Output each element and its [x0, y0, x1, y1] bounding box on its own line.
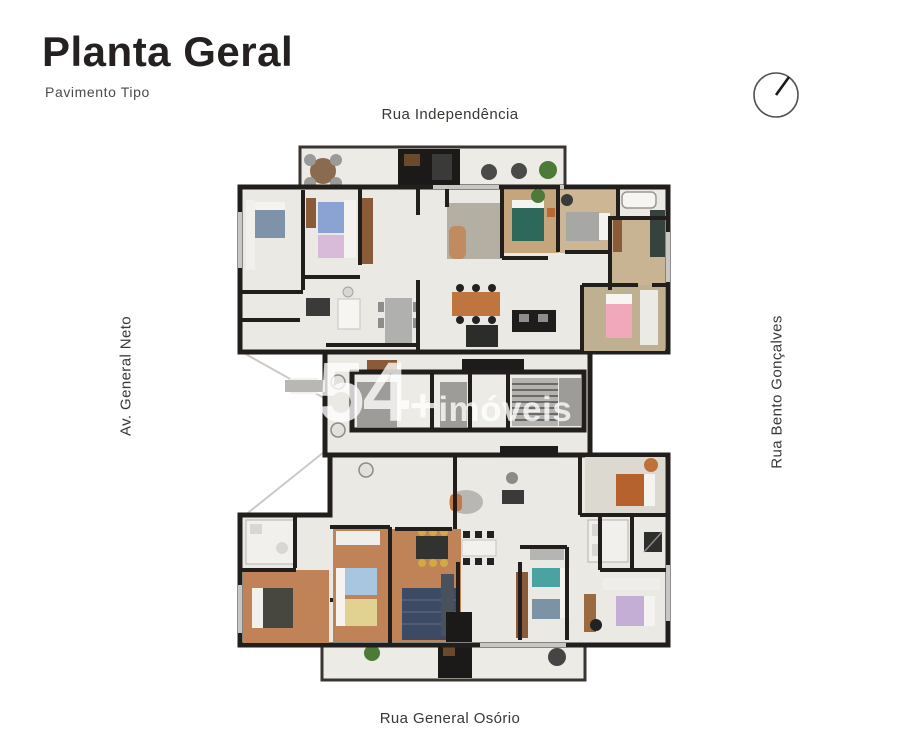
dining-table-gray [385, 298, 412, 344]
bed-teal-2 [532, 568, 560, 587]
bed-bluegray [255, 210, 285, 238]
elevator [559, 378, 581, 426]
party-wall-shaft [446, 612, 472, 642]
dining-table-dark [416, 536, 448, 559]
bathtub [622, 192, 656, 208]
desk-chair [590, 619, 602, 631]
floor-plan [0, 0, 900, 754]
top-balcony [300, 147, 565, 189]
kitchen-counter-2 [462, 359, 524, 370]
bed-pink-single [606, 304, 632, 338]
balcony-chair [481, 164, 497, 180]
armchair-brown [449, 226, 466, 259]
bed-yellow [345, 599, 377, 626]
bed-blue [318, 202, 344, 233]
dining-table-white [462, 540, 496, 556]
balcony-chair [548, 648, 566, 666]
bed-pink-twin [318, 235, 344, 258]
kitchen-counter [512, 310, 556, 332]
property-lines [242, 352, 324, 516]
bed-darkgray [263, 588, 293, 628]
table-black [466, 325, 498, 347]
elevator [357, 382, 397, 427]
bed-gray [566, 212, 600, 241]
dining-table-brown [452, 292, 500, 316]
balcony-plant [539, 161, 557, 179]
bed-lightblue [345, 568, 377, 595]
bed-rust [616, 474, 644, 506]
bed-teal [512, 208, 544, 241]
washer [331, 423, 345, 437]
bed-purple [616, 596, 644, 626]
elevator [440, 382, 467, 427]
washer [359, 463, 373, 477]
bed-bluegray-2 [532, 599, 560, 619]
balcony-chair [511, 163, 527, 179]
washer [331, 375, 345, 389]
